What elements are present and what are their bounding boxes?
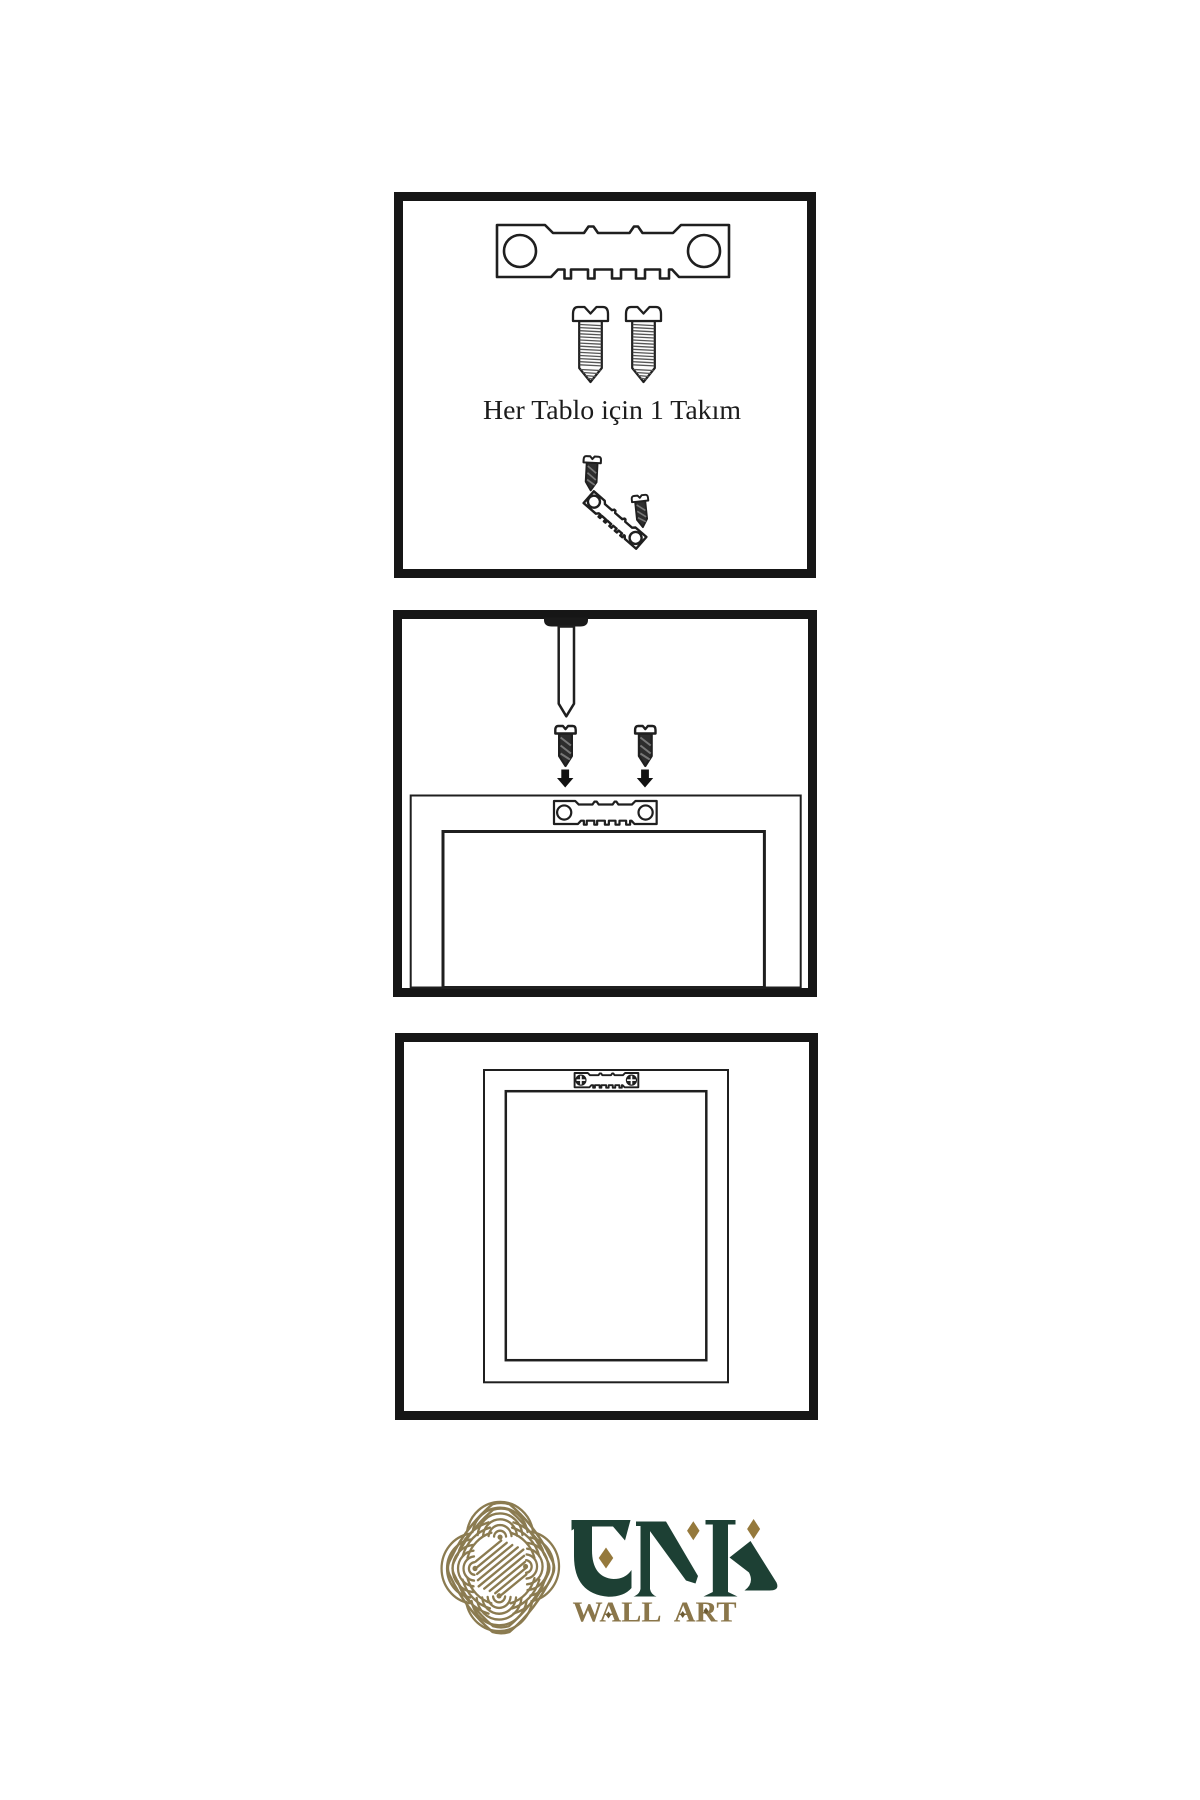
svg-text:WALL ART: WALL ART — [573, 1596, 737, 1628]
svg-text:Her Tablo için 1 Takım: Her Tablo için 1 Takım — [483, 395, 741, 425]
